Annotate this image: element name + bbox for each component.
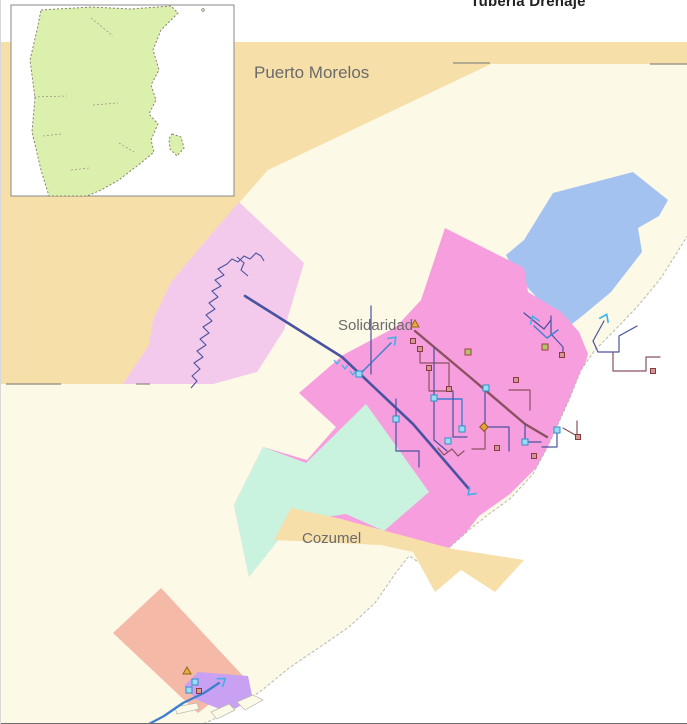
manhole-marker-icon [522,439,528,445]
label-puerto-morelos: Puerto Morelos [254,63,369,82]
label-solidaridad: Solidaridad [338,317,413,334]
node-marker-icon [411,339,416,344]
map-title: Tubería Drenaje [428,0,628,10]
drainage-map: Puerto MorelosSolidaridadCozumel [1,0,687,724]
node-marker-icon [576,435,581,440]
node-marker-icon [495,446,500,451]
manhole-marker-icon [356,371,362,377]
node-marker-icon [418,347,423,352]
manhole-marker-icon [554,427,560,433]
manhole-marker-icon [393,416,399,422]
manhole-marker-icon [192,679,198,685]
label-cozumel: Cozumel [302,530,361,547]
plant-marker-icon [465,349,471,355]
node-marker-icon [532,454,537,459]
node-marker-icon [651,369,656,374]
node-marker-icon [447,387,452,392]
node-marker-icon [514,378,519,383]
manhole-marker-icon [186,687,192,693]
manhole-marker-icon [431,395,437,401]
manhole-marker-icon [445,438,451,444]
map-canvas[interactable]: Puerto MorelosSolidaridadCozumel Tubería… [0,0,687,724]
manhole-marker-icon [483,385,489,391]
node-marker-icon [560,353,565,358]
plant-marker-icon [542,344,548,350]
node-marker-icon [427,366,432,371]
manhole-marker-icon [459,426,465,432]
node-marker-icon [197,689,202,694]
